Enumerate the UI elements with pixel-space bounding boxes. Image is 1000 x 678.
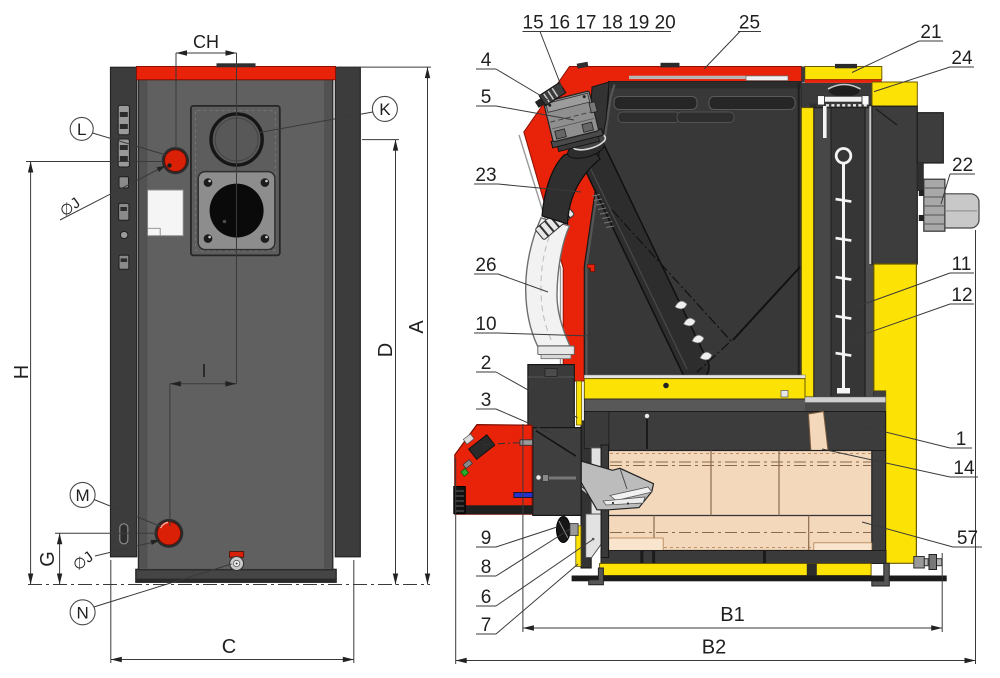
svg-text:K: K	[379, 100, 391, 119]
svg-text:25: 25	[739, 13, 760, 34]
svg-text:21: 21	[920, 22, 941, 43]
svg-text:CH: CH	[193, 32, 219, 52]
svg-text:H: H	[11, 365, 33, 379]
svg-text:57: 57	[957, 528, 978, 549]
svg-text:23: 23	[475, 165, 496, 186]
svg-text:2: 2	[481, 353, 492, 374]
svg-text:D: D	[375, 343, 397, 357]
svg-text:G: G	[37, 551, 59, 567]
svg-text:15 16 17 18 19 20: 15 16 17 18 19 20	[523, 13, 676, 34]
svg-text:5: 5	[481, 87, 492, 108]
svg-text:I: I	[201, 361, 206, 381]
svg-text:L: L	[77, 120, 86, 139]
svg-text:8: 8	[481, 557, 492, 578]
svg-text:B2: B2	[702, 637, 726, 659]
svg-text:14: 14	[953, 458, 975, 479]
svg-text:11: 11	[952, 254, 972, 275]
svg-text:24: 24	[951, 48, 973, 69]
svg-text:M: M	[76, 486, 90, 505]
svg-text:4: 4	[481, 50, 492, 71]
svg-text:22: 22	[952, 155, 973, 176]
svg-text:N: N	[76, 604, 88, 623]
svg-text:12: 12	[951, 285, 972, 306]
svg-text:1: 1	[956, 429, 967, 450]
svg-text:7: 7	[481, 615, 492, 636]
svg-text:A: A	[406, 320, 428, 334]
svg-text:3: 3	[481, 390, 492, 411]
svg-text:9: 9	[481, 528, 492, 549]
svg-text:26: 26	[475, 255, 496, 276]
svg-text:6: 6	[481, 587, 492, 608]
svg-text:10: 10	[475, 314, 496, 335]
svg-text:C: C	[222, 636, 236, 658]
svg-text:B1: B1	[720, 604, 744, 626]
